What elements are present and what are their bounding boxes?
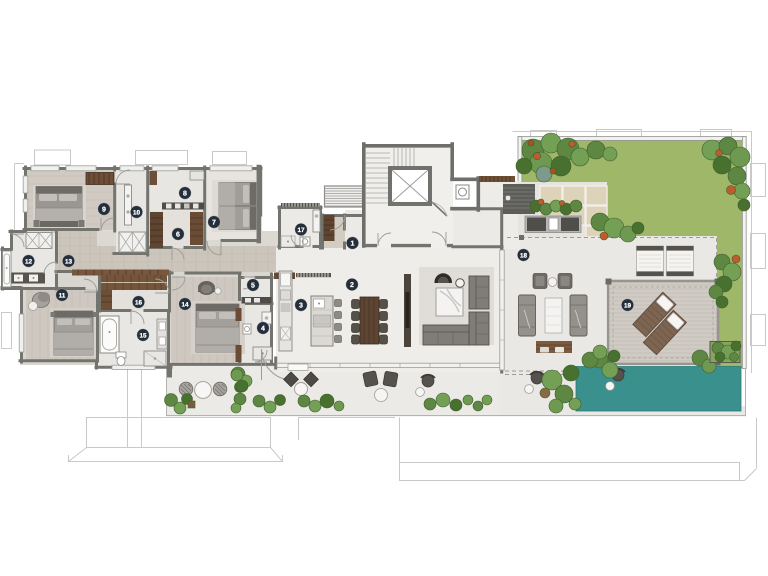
svg-text:4: 4 — [261, 326, 265, 333]
svg-text:8: 8 — [183, 191, 187, 198]
svg-text:17: 17 — [297, 227, 305, 234]
svg-text:9: 9 — [102, 207, 106, 214]
svg-text:10: 10 — [133, 210, 141, 217]
svg-text:12: 12 — [25, 259, 33, 266]
svg-text:18: 18 — [520, 253, 528, 260]
svg-text:19: 19 — [624, 303, 632, 310]
svg-text:7: 7 — [212, 220, 216, 227]
svg-text:11: 11 — [59, 293, 66, 300]
svg-text:13: 13 — [65, 259, 73, 266]
svg-text:15: 15 — [139, 333, 147, 340]
svg-text:1: 1 — [351, 241, 355, 248]
svg-text:2: 2 — [350, 282, 354, 289]
svg-text:16: 16 — [135, 300, 143, 307]
svg-text:5: 5 — [251, 283, 255, 290]
svg-text:3: 3 — [299, 303, 303, 310]
svg-text:6: 6 — [176, 232, 180, 239]
svg-text:14: 14 — [181, 302, 189, 309]
